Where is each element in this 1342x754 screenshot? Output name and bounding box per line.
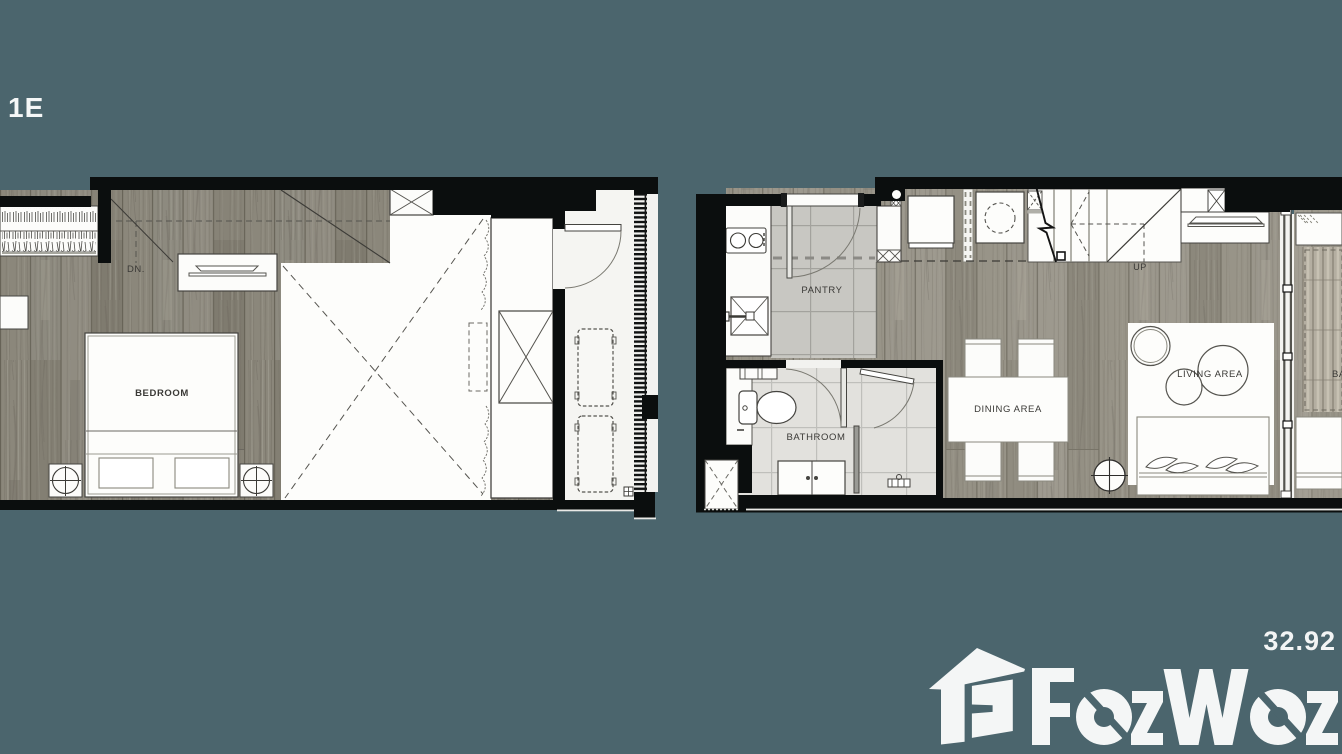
- svg-text:BEDROOM: BEDROOM: [135, 388, 189, 399]
- svg-text:1E: 1E: [8, 92, 44, 123]
- svg-text:UP: UP: [1133, 262, 1147, 272]
- svg-text:BA: BA: [1332, 369, 1342, 380]
- svg-text:BATHROOM: BATHROOM: [787, 432, 846, 443]
- svg-text:32.92: 32.92: [1263, 626, 1336, 656]
- svg-text:DINING AREA: DINING AREA: [974, 404, 1042, 415]
- svg-text:LIVING AREA: LIVING AREA: [1177, 369, 1243, 380]
- svg-text:PANTRY: PANTRY: [801, 285, 842, 296]
- svg-text:DN.: DN.: [127, 264, 145, 275]
